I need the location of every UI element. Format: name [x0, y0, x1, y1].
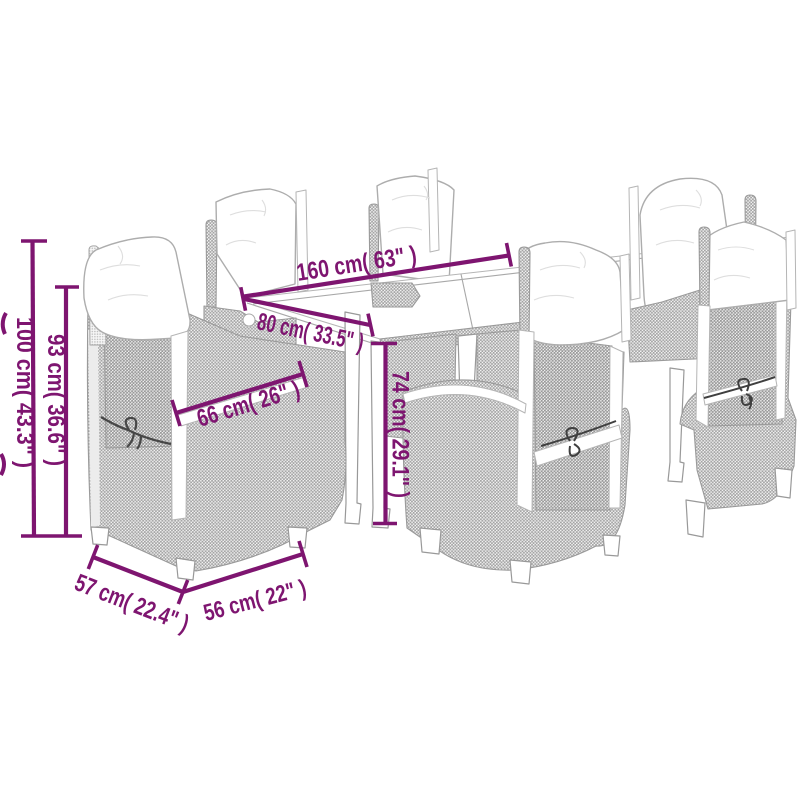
- svg-text:100 cm( 43.3" ): 100 cm( 43.3" ): [11, 317, 38, 468]
- svg-text:93 cm( 36.6" ): 93 cm( 36.6" ): [42, 334, 69, 466]
- svg-text:74 cm( 29.1" ): 74 cm( 29.1" ): [387, 371, 414, 498]
